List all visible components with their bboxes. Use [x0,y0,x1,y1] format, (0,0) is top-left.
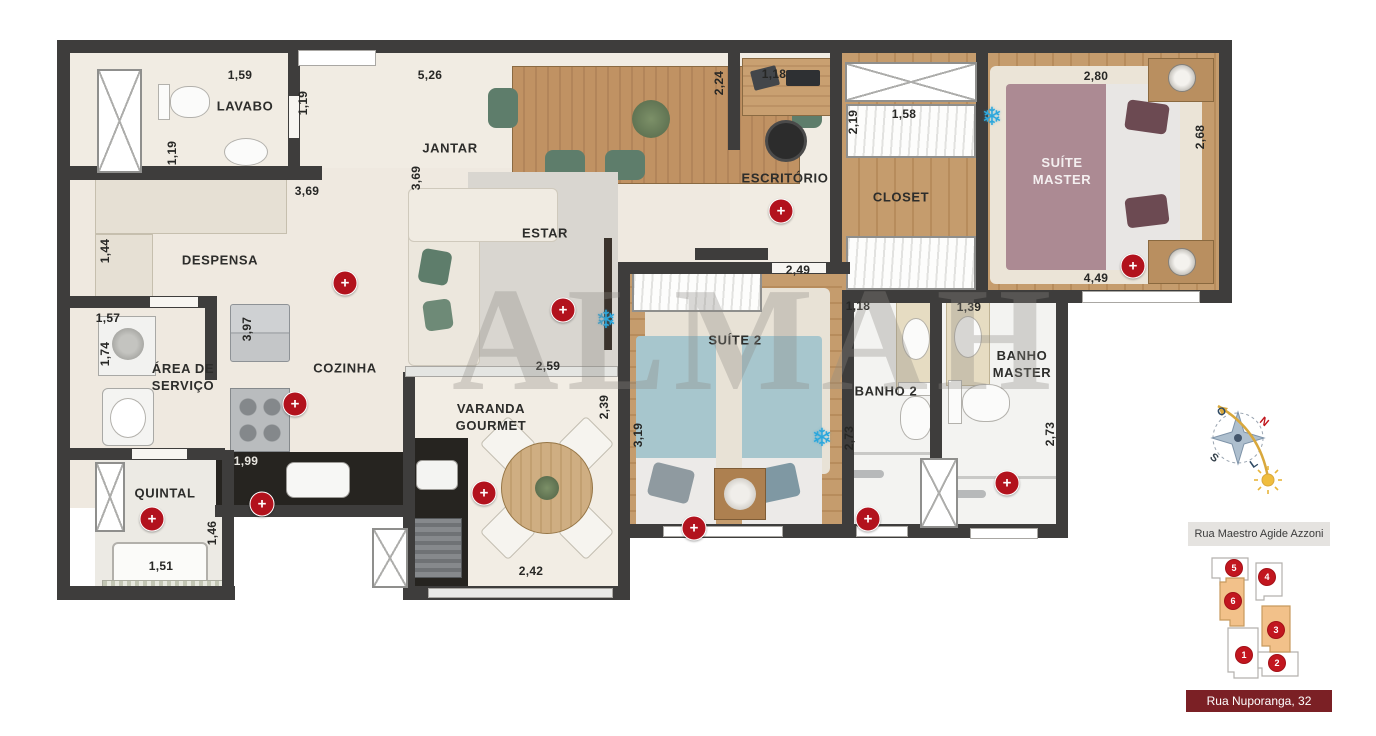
shaft-quintal-left [95,462,125,532]
ac-unit-icon: ❄ [812,423,833,453]
dim-bench-width: 1,51 [149,559,174,573]
keyplan-building-outline [1186,548,1332,688]
compass-rose-icon [1192,396,1292,496]
window-top [298,50,376,66]
compass: O N S L [1192,396,1292,496]
hotspot-marker-cozinha: + [283,392,308,417]
sofa-pillow [422,298,454,332]
dim-banho-master-height: 2,73 [1043,422,1057,447]
keyplan-unit-4: 4 [1258,568,1276,586]
dim-estar-height: 3,69 [409,166,423,191]
hotspot-marker-suite-master: + [1121,254,1146,279]
door-servico [150,297,198,307]
room-label-estar: ESTAR [522,226,568,243]
master-pillow [1124,99,1170,135]
watermark: ALMAH [452,255,1059,425]
hotspot-marker-varanda: + [472,481,497,506]
wall-quintal-bottom [57,586,235,600]
room-label-cozinha: COZINHA [313,361,376,378]
wall-cozinha-bottom [215,505,415,517]
banho2-shower-line [846,452,940,455]
kitchen-sink [286,462,350,498]
wall-top [57,40,1232,53]
keyplan-unit-1: 1 [1235,646,1253,664]
dim-counter-width: 1,99 [234,454,259,468]
dim-banho2-height: 2,73 [842,426,856,451]
dim-lavabo-door: 1,19 [296,91,310,116]
keyplan: Rua Maestro Agide Azzoni 5 4 6 3 1 2 Rua… [1186,518,1332,718]
suite2-side-table-tray [724,478,756,510]
keyplan-street-bottom: Rua Nuporanga, 32 [1186,690,1332,712]
room-label-lavabo: LAVABO [217,99,274,116]
dim-jantar-width: 5,26 [418,68,443,82]
varanda-plant [535,476,559,500]
door-quintal [132,449,187,459]
wall-right [1219,40,1232,292]
banho2-shower-head [850,470,884,478]
hotspot-marker-quintal: + [140,507,165,532]
hotspot-marker-banho-master: + [995,471,1020,496]
room-label-despensa: DESPENSA [182,253,258,270]
wall-quintal-right [222,450,234,600]
dim-lavabo-depth: 1,19 [165,141,179,166]
hotspot-marker-banho2: + [856,507,881,532]
wall-left [57,40,70,600]
window-varanda [428,588,613,598]
dim-hall-width: 3,69 [295,184,320,198]
office-chair [765,120,807,162]
master-pillow [1124,194,1169,229]
dim-escritorio-width: 1,18 [762,67,787,81]
shaft-top-left [97,69,142,173]
room-label-area-servico: ÁREA DE SERVIÇO [140,361,226,395]
dim-varanda-width: 2,42 [519,564,544,578]
desk-monitor [786,70,820,86]
dim-master-depth: 2,68 [1193,125,1207,150]
dim-lavabo-width: 1,59 [228,68,253,82]
floorplan-image: LAVABO DESPENSA JANTAR ESTAR ESCRITÓRIO … [0,0,1376,736]
dim-master-width: 2,80 [1084,69,1109,83]
dim-servico-width: 1,57 [96,311,121,325]
dim-despensa-height: 1,44 [98,239,112,264]
wall-escritorio-right [830,52,842,264]
dim-closet-depth: 2,19 [846,110,860,135]
dim-cozinha-height: 3,97 [240,317,254,342]
lavabo-sink [224,138,268,166]
table-plant [632,100,670,138]
laundry-sink-basin [110,398,146,438]
lavabo-toilet-tank [158,84,170,120]
lamp [1168,248,1196,276]
ac-unit-icon: ❄ [982,102,1003,132]
varanda-sink [416,460,458,490]
lamp [1168,64,1196,92]
room-label-closet: CLOSET [873,190,929,207]
dim-escritorio-depth: 2,24 [712,71,726,96]
hotspot-marker-despensa: + [333,271,358,296]
stove-burners [236,394,284,446]
hotspot-marker-suite2: + [682,516,707,541]
fridge [230,304,290,362]
shaft-bottom-middle [372,528,408,588]
room-label-jantar: JANTAR [422,141,477,158]
shaft-closet-top [845,62,977,102]
dim-suite2-height: 3,19 [631,423,645,448]
room-label-suite-master: SUÍTE MASTER [1027,155,1097,189]
grill [412,518,462,578]
hotspot-marker-escritorio: + [769,199,794,224]
keyplan-unit-6: 6 [1224,592,1242,610]
shaft-banhos [920,458,958,528]
window-banho-master [970,528,1038,539]
despensa-shelf [95,176,287,234]
keyplan-unit-2: 2 [1268,654,1286,672]
dim-master-length: 4,49 [1084,271,1109,285]
washing-machine-door [112,328,144,360]
dim-servico-depth: 1,74 [98,342,112,367]
dining-chair [488,88,518,128]
hotspot-marker-counter: + [250,492,275,517]
room-label-escritorio: ESCRITÓRIO [742,171,829,188]
keyplan-unit-5: 5 [1225,559,1243,577]
lavabo-toilet-bowl [170,86,210,118]
wall-escritorio-left [728,52,740,150]
window-master [1082,291,1200,303]
keyplan-street-top: Rua Maestro Agide Azzoni [1188,522,1330,546]
room-label-quintal: QUINTAL [134,486,195,503]
dim-closet-width: 1,58 [892,107,917,121]
sofa-pillow [417,248,452,287]
dim-quintal-height: 1,46 [205,521,219,546]
keyplan-unit-3: 3 [1267,621,1285,639]
